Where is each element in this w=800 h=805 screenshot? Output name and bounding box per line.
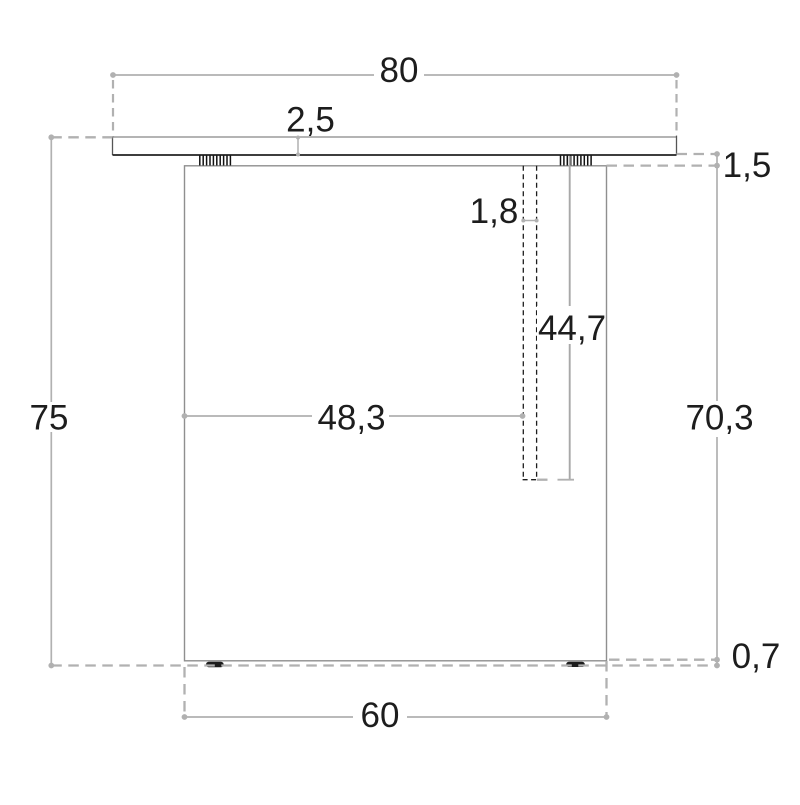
svg-text:44,7: 44,7 <box>538 309 606 348</box>
svg-text:0,7: 0,7 <box>732 637 781 676</box>
svg-text:1,8: 1,8 <box>470 192 519 231</box>
svg-text:48,3: 48,3 <box>317 399 385 438</box>
svg-text:1,5: 1,5 <box>723 146 772 185</box>
svg-text:75: 75 <box>30 399 69 438</box>
svg-text:2,5: 2,5 <box>286 101 335 140</box>
svg-text:80: 80 <box>380 51 419 90</box>
svg-text:60: 60 <box>361 696 400 735</box>
svg-text:70,3: 70,3 <box>685 399 753 438</box>
